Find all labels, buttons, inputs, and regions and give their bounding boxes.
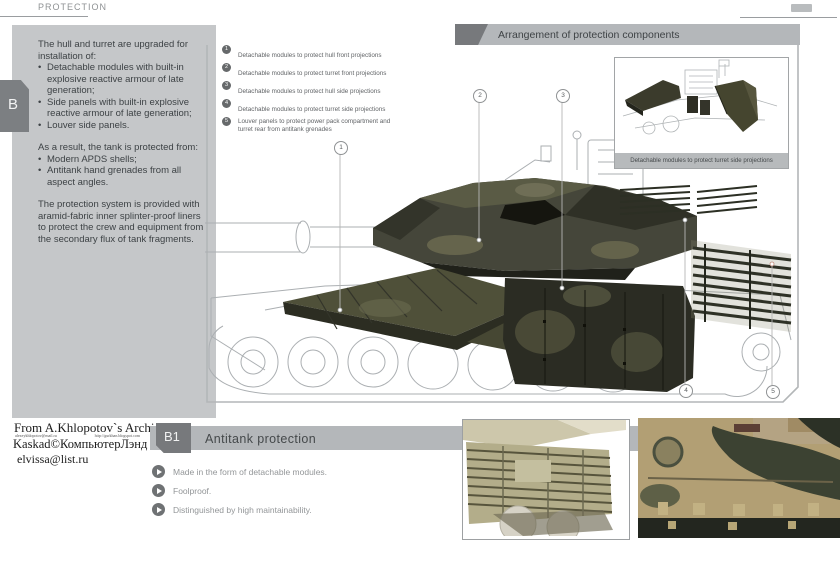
inset-caption: Detachable modules to protect turret sid…	[615, 153, 788, 168]
list-item: Antitank hand grenades from all aspect a…	[38, 165, 208, 188]
turret-inset-figure: Detachable modules to protect turret sid…	[614, 57, 789, 169]
kaskad-credit: Kaskad©КомпьютерЛэнд	[13, 437, 147, 452]
list-item: Modern APDS shells;	[38, 154, 208, 166]
page-header-title: PROTECTION	[38, 2, 107, 12]
tank-rear-photo	[638, 418, 840, 538]
louver-armor-art	[463, 420, 626, 536]
b1-bullet-item: Foolproof.	[152, 484, 211, 497]
section-b-tab: B	[0, 80, 29, 132]
play-bullet-icon	[152, 503, 165, 516]
section-b1-tab: B1	[156, 423, 191, 453]
callout-circle-3: 3	[556, 89, 570, 103]
info-paragraph-3: The protection system is provided with a…	[38, 199, 208, 245]
protection-info-panel: The hull and turret are upgraded for ins…	[12, 25, 216, 418]
book-page: PROTECTION The hull and turret are upgra…	[0, 0, 840, 564]
turret-inset-art	[615, 58, 786, 151]
contact-email: elvissa@list.ru	[17, 452, 88, 467]
list-item: Louver side panels.	[38, 120, 208, 132]
tank-rear-photo-art	[638, 418, 840, 538]
info-paragraph-1: The hull and turret are upgraded for ins…	[38, 39, 208, 62]
b1-bullet-item: Distinguished by high maintainability.	[152, 503, 312, 516]
info-paragraph-2: As a result, the tank is protected from:	[38, 142, 208, 154]
list-item: Side panels with built-in explosive reac…	[38, 97, 208, 120]
callout-circle-1: 1	[334, 141, 348, 155]
upgrade-list: Detachable modules with built-in explosi…	[38, 62, 208, 131]
section-b-label: B	[8, 96, 18, 113]
callout-circle-2: 2	[473, 89, 487, 103]
louver-armor-render	[462, 419, 630, 540]
b1-section-title: Antitank protection	[205, 432, 316, 446]
callout-circle-4: 4	[679, 384, 693, 398]
header-rule-left	[0, 16, 88, 17]
b1-bullet-item: Made in the form of detachable modules.	[152, 465, 327, 478]
callout-circle-5: 5	[766, 385, 780, 399]
publisher-logo	[791, 4, 812, 12]
section-b1-label: B1	[164, 429, 180, 444]
list-item: Detachable modules with built-in explosi…	[38, 62, 208, 97]
protection-list: Modern APDS shells; Antitank hand grenad…	[38, 154, 208, 189]
play-bullet-icon	[152, 484, 165, 497]
header-rule-right	[740, 17, 837, 18]
play-bullet-icon	[152, 465, 165, 478]
